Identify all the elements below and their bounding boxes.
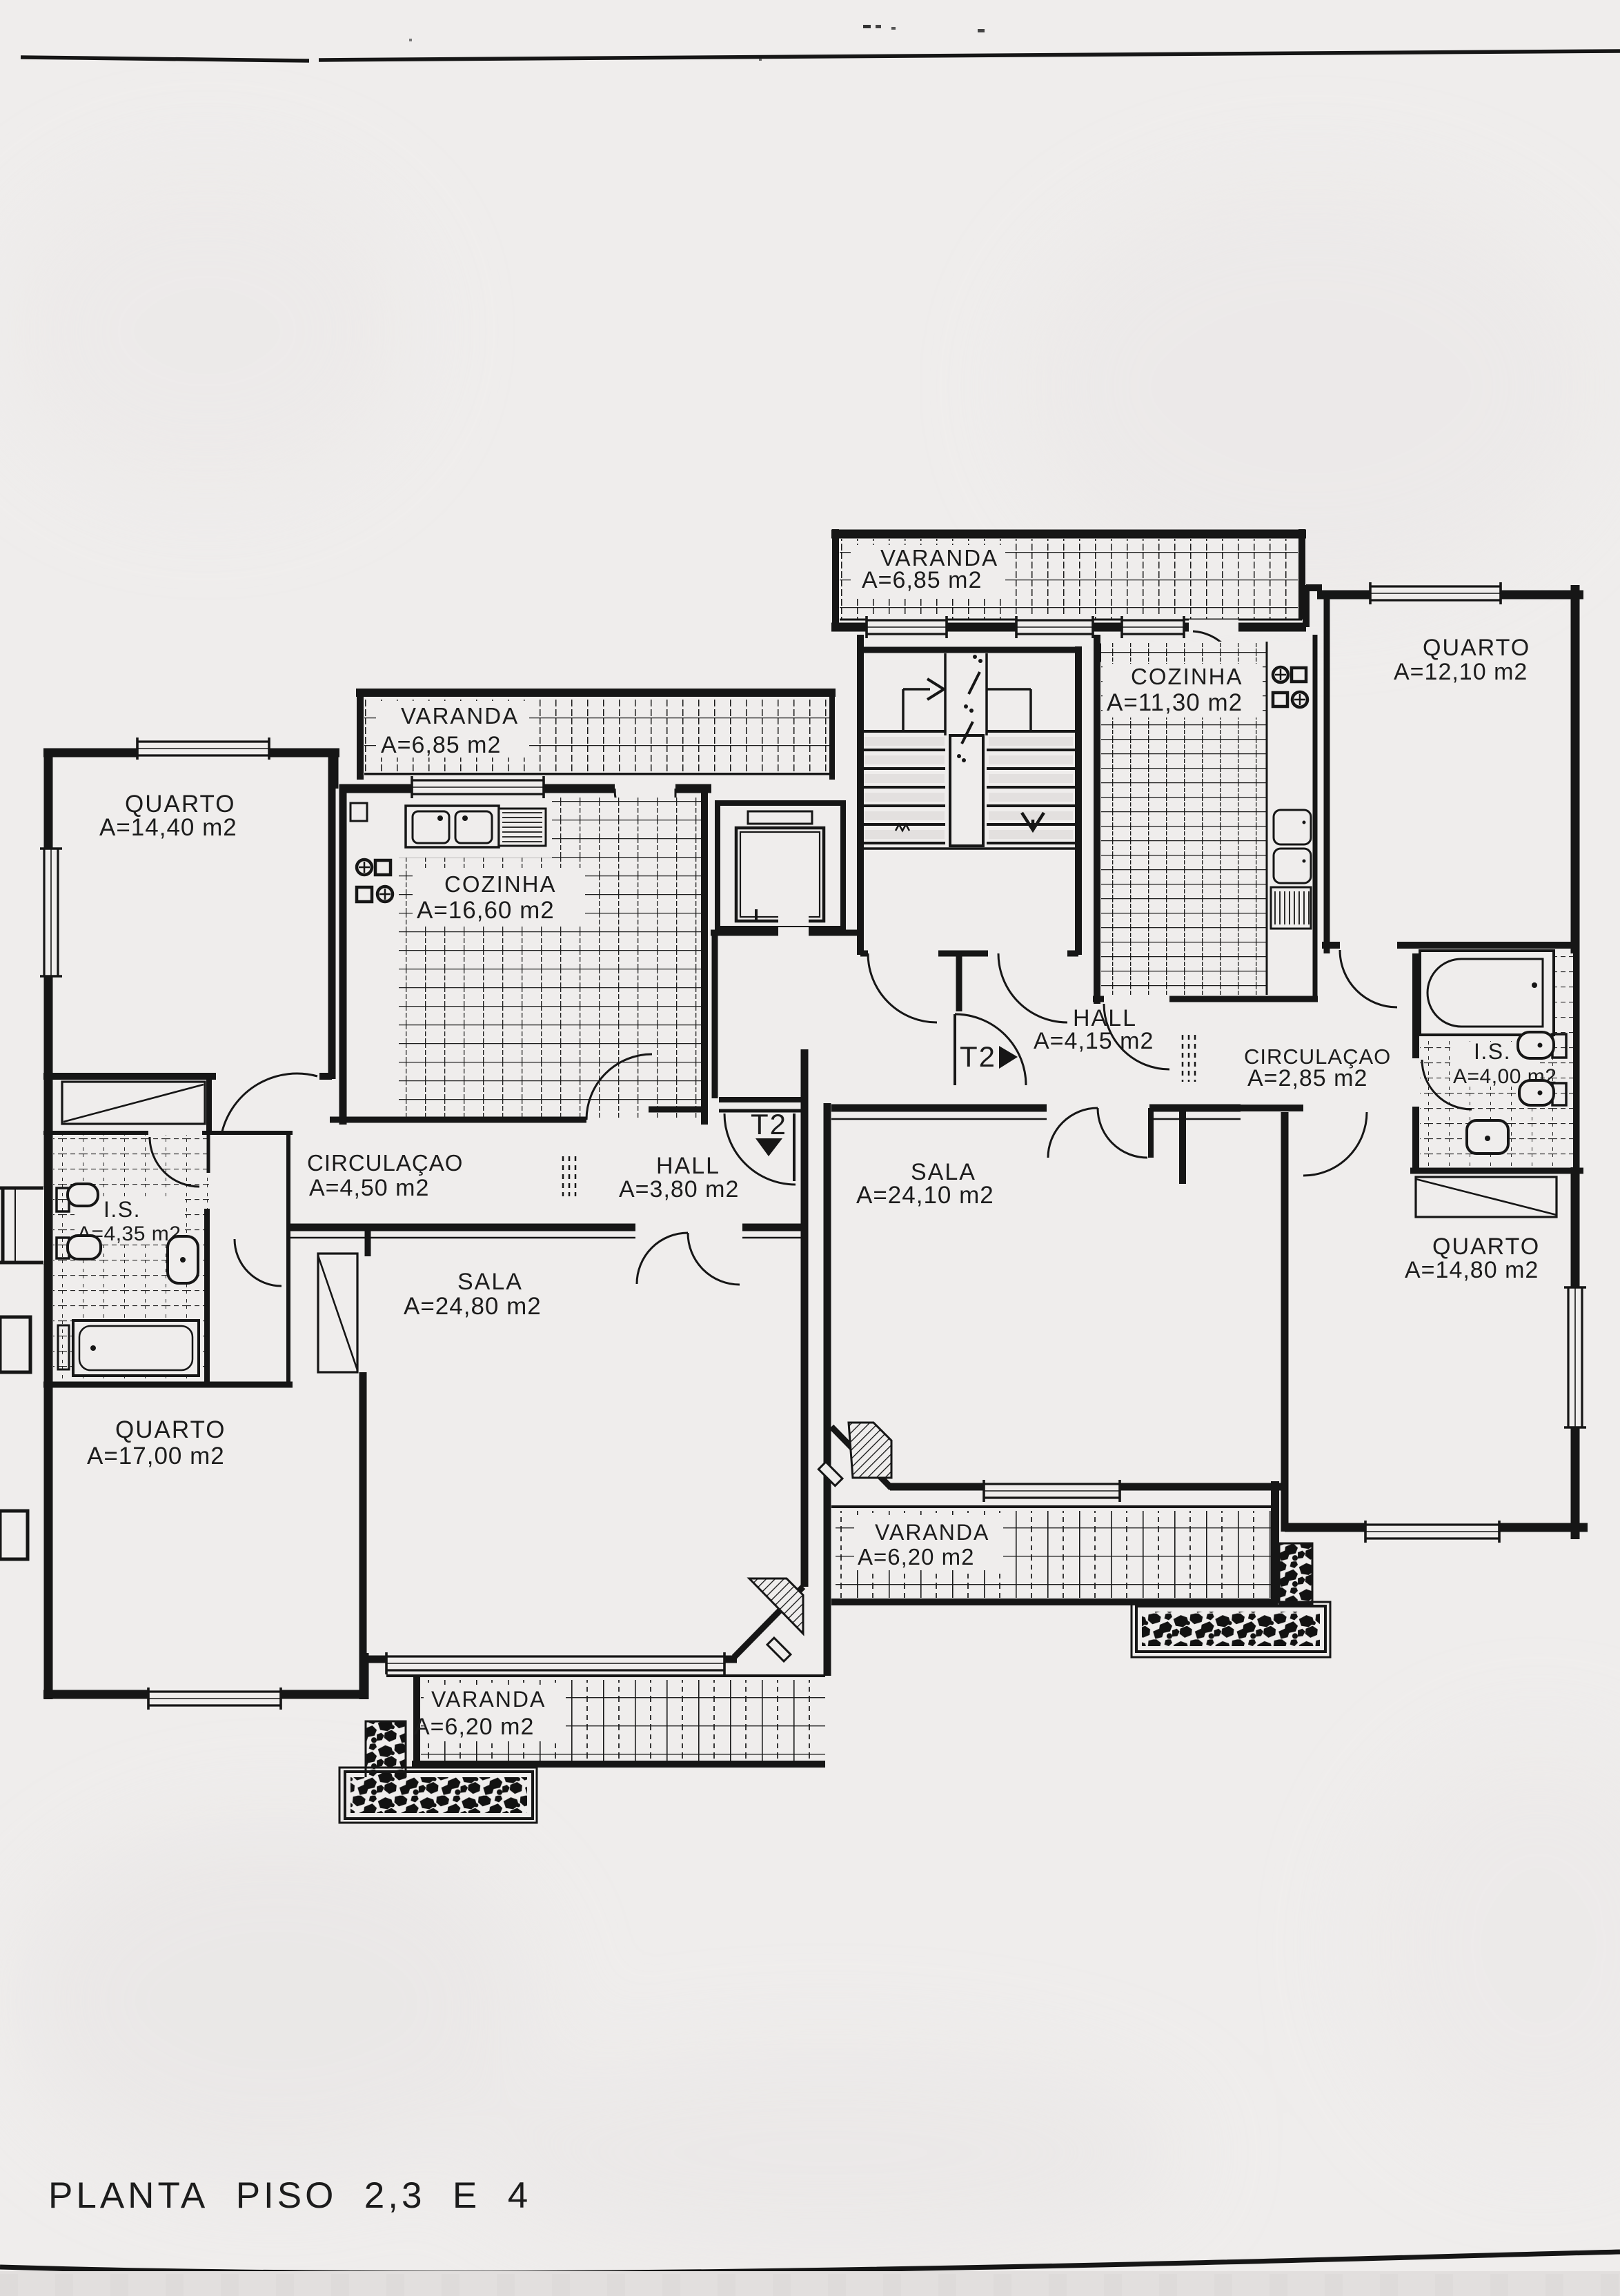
svg-text:CIRCULAÇAO: CIRCULAÇAO	[307, 1150, 463, 1176]
svg-text:VARANDA: VARANDA	[875, 1520, 989, 1545]
svg-text:COZINHA: COZINHA	[444, 871, 557, 897]
svg-text:SALA: SALA	[457, 1269, 523, 1295]
svg-text:A=14,40 m2: A=14,40 m2	[99, 814, 237, 841]
svg-text:A=6,20 m2: A=6,20 m2	[414, 1714, 534, 1740]
svg-text:I.S.: I.S.	[103, 1197, 141, 1222]
svg-text:A=6,85 m2: A=6,85 m2	[381, 732, 501, 758]
svg-text:VARANDA: VARANDA	[401, 703, 519, 729]
svg-text:A=16,60 m2: A=16,60 m2	[417, 897, 555, 924]
svg-text:A=6,85 m2: A=6,85 m2	[862, 567, 982, 593]
svg-text:A=24,80 m2: A=24,80 m2	[404, 1293, 542, 1320]
svg-text:A=14,80 m2: A=14,80 m2	[1405, 1257, 1539, 1283]
svg-text:T2: T2	[960, 1040, 996, 1073]
svg-text:PLANTA PISO 2,3 E 4: PLANTA PISO 2,3 E 4	[48, 2175, 531, 2216]
svg-text:HALL: HALL	[656, 1153, 720, 1179]
svg-text:COZINHA: COZINHA	[1131, 664, 1243, 689]
svg-text:A=12,10 m2: A=12,10 m2	[1394, 659, 1528, 685]
svg-text:A=3,80 m2: A=3,80 m2	[619, 1176, 739, 1203]
svg-text:A=4,50 m2: A=4,50 m2	[309, 1175, 429, 1201]
svg-text:A=2,85 m2: A=2,85 m2	[1247, 1065, 1367, 1091]
svg-text:QUARTO: QUARTO	[115, 1416, 226, 1443]
svg-text:QUARTO: QUARTO	[1432, 1234, 1540, 1260]
svg-text:A=4,15 m2: A=4,15 m2	[1034, 1028, 1154, 1054]
svg-text:VARANDA: VARANDA	[431, 1687, 546, 1712]
svg-text:A=17,00 m2: A=17,00 m2	[87, 1443, 225, 1469]
svg-text:A=24,10 m2: A=24,10 m2	[856, 1182, 994, 1209]
svg-text:QUARTO: QUARTO	[1423, 635, 1530, 661]
svg-text:T2: T2	[751, 1108, 787, 1140]
svg-text:A=6,20 m2: A=6,20 m2	[858, 1544, 975, 1570]
svg-text:A=11,30 m2: A=11,30 m2	[1107, 689, 1243, 716]
svg-text:I.S.: I.S.	[1474, 1039, 1511, 1064]
